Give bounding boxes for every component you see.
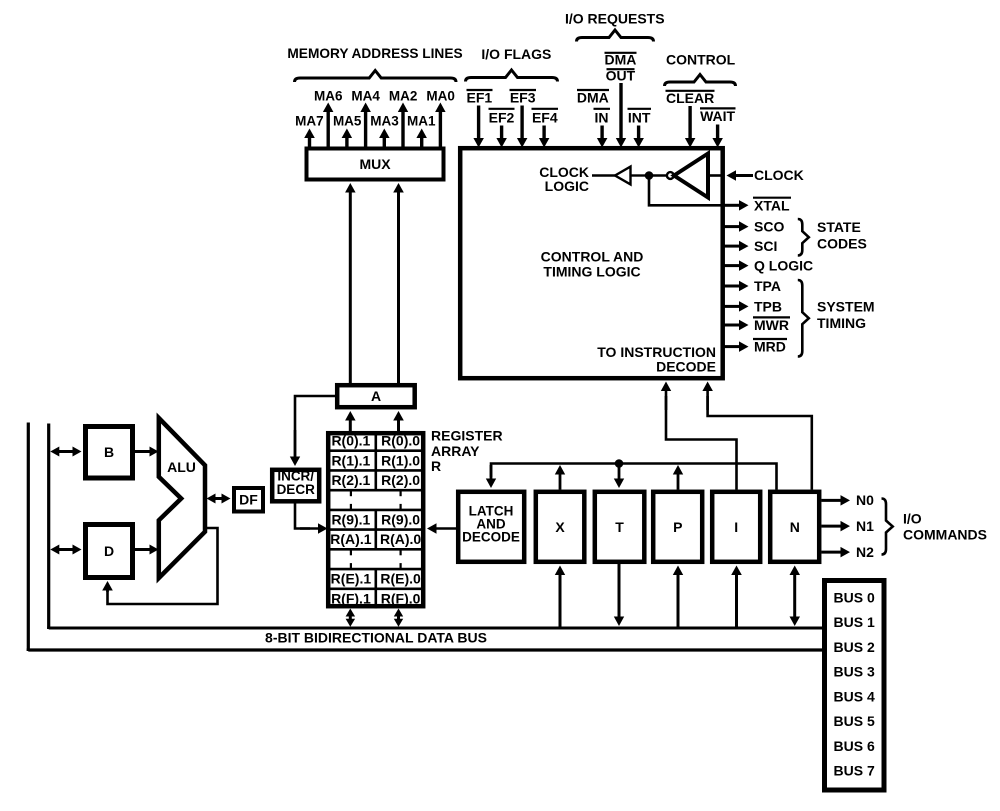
svg-text:EF4: EF4	[532, 109, 558, 125]
svg-text:R(0).1: R(0).1	[331, 433, 370, 449]
svg-text:BUS 1: BUS 1	[834, 614, 875, 630]
svg-text:CONTROL: CONTROL	[666, 52, 736, 68]
svg-text:LOGIC: LOGIC	[545, 178, 589, 194]
svg-text:BUS 0: BUS 0	[834, 589, 875, 605]
svg-text:BUS 6: BUS 6	[834, 738, 875, 754]
svg-text:DECODE: DECODE	[462, 530, 520, 545]
svg-text:A: A	[371, 388, 381, 404]
svg-text:TIMING: TIMING	[817, 315, 866, 331]
svg-text:R(E).0: R(E).0	[380, 571, 421, 587]
svg-text:TIMING LOGIC: TIMING LOGIC	[543, 264, 640, 280]
svg-text:BUS 4: BUS 4	[834, 688, 875, 704]
svg-text:BUS 2: BUS 2	[834, 639, 875, 655]
svg-text:BUS 3: BUS 3	[834, 664, 875, 680]
svg-text:MA1: MA1	[407, 114, 436, 129]
svg-text:SCI: SCI	[754, 238, 777, 254]
svg-text:SCO: SCO	[754, 219, 784, 235]
svg-text:R(2).1: R(2).1	[331, 472, 370, 488]
svg-text:R(F).0: R(F).0	[381, 590, 421, 606]
svg-text:REGISTER: REGISTER	[431, 428, 503, 444]
svg-text:MA5: MA5	[333, 114, 362, 129]
svg-text:MA3: MA3	[370, 114, 399, 129]
svg-text:TPA: TPA	[754, 278, 781, 294]
svg-text:MA4: MA4	[351, 89, 380, 104]
svg-text:R(A).1: R(A).1	[330, 531, 371, 547]
svg-text:R(9).1: R(9).1	[331, 512, 370, 528]
svg-text:D: D	[104, 543, 114, 559]
svg-text:DMA: DMA	[577, 90, 609, 106]
svg-text:TPB: TPB	[754, 298, 782, 314]
svg-text:DECR: DECR	[277, 482, 316, 497]
svg-text:CONTROL AND: CONTROL AND	[541, 249, 644, 265]
svg-text:MA7: MA7	[295, 114, 324, 129]
svg-text:MWR: MWR	[754, 317, 789, 333]
svg-text:R(F).1: R(F).1	[331, 590, 371, 606]
svg-text:IN: IN	[595, 109, 609, 125]
svg-text:R(1).0: R(1).0	[381, 452, 420, 468]
svg-text:N1: N1	[856, 518, 874, 534]
svg-text:8-BIT BIDIRECTIONAL DATA BUS: 8-BIT BIDIRECTIONAL DATA BUS	[265, 630, 487, 646]
svg-text:MEMORY ADDRESS LINES: MEMORY ADDRESS LINES	[287, 46, 462, 61]
svg-text:CODES: CODES	[817, 236, 867, 252]
svg-text:EF2: EF2	[489, 109, 515, 125]
svg-text:I: I	[734, 519, 738, 535]
svg-text:R(E).1: R(E).1	[331, 571, 372, 587]
svg-text:DECODE: DECODE	[656, 359, 716, 375]
svg-text:I/O REQUESTS: I/O REQUESTS	[565, 11, 665, 27]
svg-text:N0: N0	[856, 492, 874, 508]
svg-text:EF1: EF1	[467, 90, 493, 106]
svg-text:BUS 7: BUS 7	[834, 763, 875, 779]
svg-text:DMA: DMA	[604, 52, 636, 68]
svg-text:Q LOGIC: Q LOGIC	[754, 258, 813, 274]
svg-text:CLOCK: CLOCK	[754, 167, 804, 183]
svg-text:R(2).0: R(2).0	[381, 472, 420, 488]
svg-text:X: X	[555, 519, 565, 535]
svg-text:T: T	[615, 519, 624, 535]
svg-text:MUX: MUX	[359, 156, 391, 172]
svg-text:R(0).0: R(0).0	[381, 433, 420, 449]
svg-text:MRD: MRD	[754, 339, 786, 355]
svg-text:B: B	[104, 444, 114, 460]
svg-text:DF: DF	[239, 492, 258, 508]
svg-text:ARRAY: ARRAY	[431, 443, 480, 459]
svg-text:R(1).1: R(1).1	[331, 452, 370, 468]
svg-text:CLEAR: CLEAR	[666, 90, 714, 106]
svg-text:MA0: MA0	[426, 89, 455, 104]
svg-text:P: P	[673, 519, 682, 535]
svg-text:INT: INT	[628, 109, 651, 125]
svg-text:MA6: MA6	[314, 89, 343, 104]
svg-text:BUS 5: BUS 5	[834, 713, 875, 729]
svg-text:EF3: EF3	[510, 90, 536, 106]
svg-text:COMMANDS: COMMANDS	[903, 527, 987, 543]
svg-text:N2: N2	[856, 544, 874, 560]
svg-text:WAIT: WAIT	[700, 108, 735, 124]
svg-text:R(9).0: R(9).0	[381, 512, 420, 528]
svg-text:I/O FLAGS: I/O FLAGS	[481, 46, 551, 62]
svg-text:XTAL: XTAL	[754, 197, 790, 213]
svg-text:SYSTEM: SYSTEM	[817, 299, 875, 315]
svg-text:ALU: ALU	[167, 459, 196, 475]
svg-text:OUT: OUT	[606, 68, 636, 84]
svg-text:STATE: STATE	[817, 219, 861, 235]
svg-text:N: N	[790, 519, 800, 535]
svg-text:R(A).0: R(A).0	[380, 531, 421, 547]
svg-text:MA2: MA2	[389, 89, 418, 104]
svg-text:R: R	[431, 458, 441, 474]
svg-text:I/O: I/O	[903, 511, 922, 527]
